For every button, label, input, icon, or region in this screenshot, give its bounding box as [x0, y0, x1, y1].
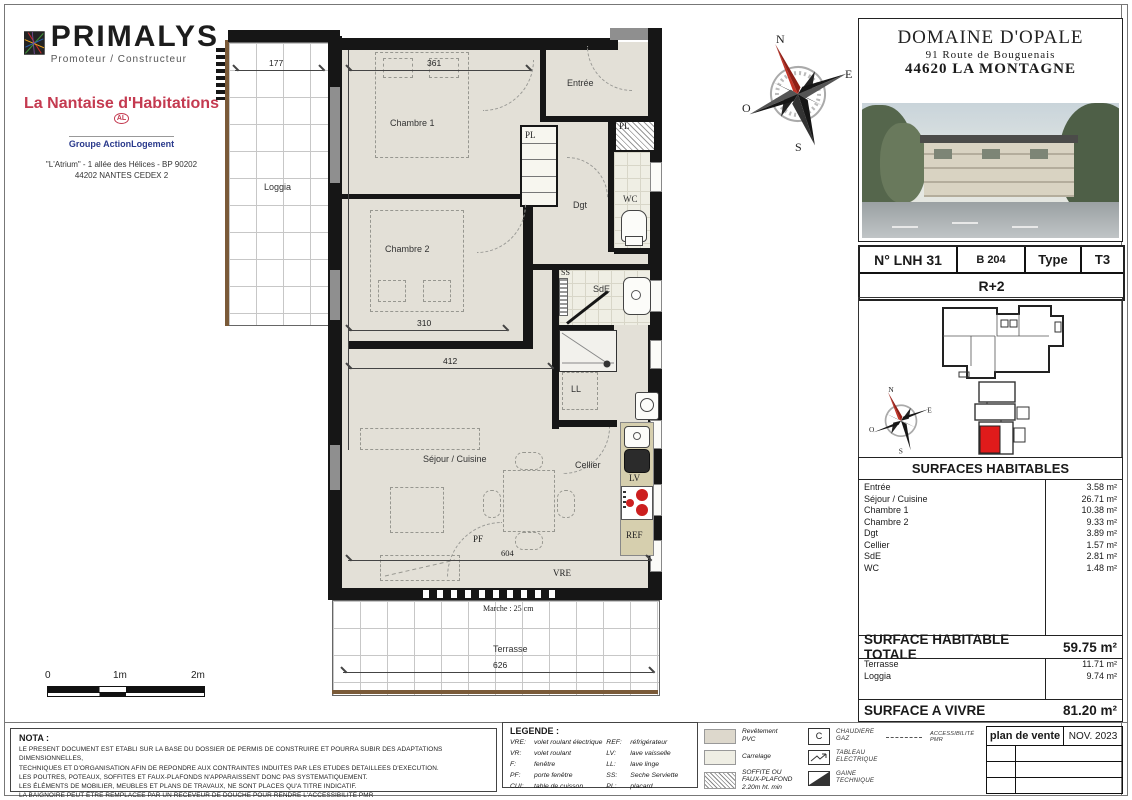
compass-s: S: [795, 140, 802, 152]
dim-sejour-label: 412: [443, 356, 457, 366]
legende-item: PL:placard: [606, 782, 690, 793]
tv-unit: [380, 555, 460, 581]
ll-label: LL: [571, 384, 581, 394]
dim-pf: [348, 560, 650, 561]
keyplan-compass-s: S: [899, 446, 903, 454]
scale-bar: 0 1m 2m: [45, 670, 205, 700]
scale-2m: 2m: [191, 670, 205, 681]
dim-terrasse: [343, 672, 653, 673]
legende-item: REF:réfrigérateur: [606, 738, 690, 749]
legende-title: LEGENDE :: [510, 726, 690, 736]
surface-row: Chambre 29.33 m²: [859, 517, 1122, 529]
unit-highlight-red: [980, 426, 1000, 453]
soffite-swatch-icon: [704, 772, 736, 789]
sde-label: SdE: [593, 284, 610, 294]
surface-row: Entrée3.58 m²: [859, 482, 1122, 494]
nota-line: LES ÉLÉMENTS DE MOBILIER, MEUBLES ET PLA…: [19, 782, 488, 791]
window-chambre2: [330, 270, 340, 320]
compass-e: E: [845, 67, 852, 81]
dim-sejour: [348, 368, 552, 369]
titleblock: plan de vente NOV. 2023: [986, 726, 1123, 794]
lv-label: LV: [629, 473, 640, 483]
pf-label: PF: [473, 534, 483, 544]
chair-bottom: [515, 532, 543, 550]
chambre2-label: Chambre 2: [385, 244, 430, 254]
building-photo: [862, 103, 1119, 238]
sofa: [360, 428, 480, 450]
surfaces-divider: [1045, 479, 1046, 636]
dining-table: [503, 470, 555, 532]
compass-rose-icon: N E S O: [742, 30, 854, 152]
totals-divider: [1045, 659, 1046, 699]
unit-info-table: N° LNH 31 B 204 Type T3 R+2: [858, 245, 1125, 301]
scale-0: 0: [45, 670, 51, 681]
wall-top-loggia: [228, 30, 340, 42]
project-street: 91 Route de Bouguenais: [859, 49, 1122, 61]
scale-1m: 1m: [113, 670, 127, 681]
wc-label: WC: [623, 194, 638, 204]
unit-type-label: Type: [1026, 247, 1082, 272]
terrasse-label: Terrasse: [493, 644, 528, 654]
vre-label: VRE: [553, 568, 571, 578]
legende-box: LEGENDE : VRE:volet roulant électrique V…: [502, 722, 698, 788]
wall-sde-left: [552, 264, 559, 429]
legende-item: F:fenêtre: [510, 760, 606, 771]
gaine-technique-icon: [808, 771, 830, 786]
dgt-label: Dgt: [573, 200, 587, 210]
vre-window: [415, 590, 563, 598]
unit-number: N° LNH 31: [860, 247, 958, 272]
terrasse-row-label: Terrasse: [859, 659, 1045, 671]
window-sde: [650, 280, 662, 312]
surface-row: SdE2.81 m²: [859, 551, 1122, 563]
totals-table: SURFACE HABITABLE TOTALE 59.75 m² Terras…: [858, 635, 1123, 722]
loggia-row-label: Loggia: [859, 671, 1045, 683]
nota-box: NOTA : LE PRESENT DOCUMENT EST ETABLI SU…: [10, 728, 497, 792]
address-line1: "L'Atrium" - 1 allée des Hélices - BP 90…: [24, 160, 219, 171]
legende-item: SS:Seche Serviette: [606, 771, 690, 782]
surfaces-title: SURFACES HABITABLES: [859, 458, 1122, 480]
loggia-row-value: 9.74 m²: [1045, 671, 1122, 683]
dim-loggia-label: 177: [269, 58, 283, 68]
pmr-legend: ACCESSIBILITÉ PMR: [886, 731, 984, 743]
symbols-legend: C CHAUDIEREGAZ TABLEAUELECTRIQUE GAINETE…: [808, 727, 898, 787]
wall-ch1-ch2: [342, 194, 528, 199]
primalys-wordmark: PRIMALYS: [51, 20, 219, 54]
toilet-base: [625, 236, 643, 246]
sejour-label: Séjour / Cuisine: [423, 454, 487, 464]
chair-right: [557, 490, 575, 518]
nota-line: TECHNIQUES ET D'ORGANISATION AFIN DE REP…: [19, 764, 488, 773]
window-chambre1: [330, 87, 340, 183]
tableau-label2: ELECTRIQUE: [836, 757, 878, 764]
marche-label: Marche : 25 cm: [483, 604, 533, 613]
water-heater-icon: [640, 398, 654, 412]
loggia-slats: [216, 48, 225, 100]
dim-terrasse-label: 626: [493, 660, 507, 670]
dim-vertical: [348, 50, 349, 450]
keyplan-unit-locator: [967, 380, 1037, 456]
surface-row: Dgt3.89 m²: [859, 528, 1122, 540]
pvc-label2: PVC: [742, 736, 778, 744]
nota-title: NOTA :: [19, 733, 488, 743]
primalys-logo-icon: [24, 26, 45, 60]
cellier-label: Cellier: [575, 460, 601, 470]
nota-line: LES POUTRES, POTEAUX, SOFFITES ET FAUX-P…: [19, 773, 488, 782]
keyplan-compass-n: N: [888, 385, 894, 394]
project-header-box: DOMAINE D'OPALE 91 Route de Bouguenais 4…: [858, 18, 1123, 242]
legende-item: PF:porte fenêtre: [510, 771, 606, 782]
branding-block: PRIMALYS Promoteur / Constructeur La Nan…: [24, 20, 219, 182]
terrasse-row-value: 11.71 m²: [1045, 659, 1122, 671]
document-date: NOV. 2023: [1064, 727, 1122, 745]
total-value: 59.75 m²: [1063, 640, 1122, 655]
tableau-electrique-icon: [808, 750, 830, 765]
compass-n: N: [776, 32, 785, 46]
dim-chambre1: [348, 70, 530, 71]
loggia-label: Loggia: [264, 182, 291, 192]
wall-wc-bottom: [614, 248, 652, 254]
chambre1-label: Chambre 1: [390, 118, 435, 128]
pl-center-label: PL: [525, 130, 536, 140]
project-city: 44620 LA MONTAGNE: [859, 61, 1122, 78]
unit-floor: R+2: [860, 274, 1123, 297]
pl-right-label: PL: [619, 121, 630, 131]
lave-vaisselle: [624, 449, 650, 473]
nota-line: LA BAIGNOIRE PEUT ÊTRE REMPLACEE PAR UN …: [19, 791, 488, 800]
unit-type-value: T3: [1082, 247, 1123, 272]
keyplan-compass-icon: N E S O: [869, 384, 933, 454]
gaine-label2: TECHNIQUE: [836, 778, 874, 785]
pillow1-chambre1: [383, 58, 413, 78]
window-shower: [650, 340, 662, 369]
legende-item: LV:lave vaisselle: [606, 749, 690, 760]
keyplan-floor-outline: [931, 302, 1071, 380]
chaudiere-label2: GAZ: [836, 736, 874, 743]
legende-item: LL:lave linge: [606, 760, 690, 771]
carrelage-label: Carrelage: [742, 753, 771, 761]
chair-top: [515, 452, 543, 470]
cooktop: [621, 486, 653, 520]
total-label: SURFACE HABITABLE TOTALE: [859, 632, 1063, 662]
titleblock-empty-row: [987, 746, 1122, 762]
legende-item: CUI:table de cuisson: [510, 782, 606, 793]
unit-ref: B 204: [958, 247, 1026, 272]
wall-cellier-bottom: [555, 420, 617, 427]
pillow1-chambre2: [378, 280, 406, 302]
pvc-label1: Revêtement: [742, 728, 778, 736]
sde-sink-drain: [631, 290, 641, 300]
legende-item: VR:volet roulant: [510, 749, 606, 760]
groupe-actionlogement: Groupe ActionLogement: [69, 136, 174, 149]
entree-label: Entrée: [567, 78, 594, 88]
window-wc: [650, 162, 662, 192]
wall-ch2-bottom: [348, 341, 533, 349]
compass-o: O: [742, 101, 751, 115]
seche-serviette: [559, 278, 568, 316]
pillow2-chambre2: [423, 280, 451, 302]
wall-entree-left: [540, 42, 546, 122]
carrelage-swatch-icon: [704, 750, 736, 765]
soffite-label2: FAUX-PLAFOND: [742, 776, 792, 784]
coffee-table: [390, 487, 444, 533]
dim-chambre1-label: 361: [427, 58, 441, 68]
project-name: DOMAINE D'OPALE: [859, 27, 1122, 49]
soffite-label3: 2.20m ht. min: [742, 784, 792, 792]
surfaces-table: SURFACES HABITABLES Entrée3.58 m² Séjour…: [858, 457, 1123, 637]
surface-row: WC1.48 m²: [859, 563, 1122, 575]
pmr-dash-icon: [886, 737, 922, 738]
plan-de-vente-page: PRIMALYS Promoteur / Constructeur La Nan…: [0, 0, 1132, 800]
materials-legend: RevêtementPVC Carrelage SOFFITE OUFAUX-P…: [704, 727, 804, 791]
ref-label: REF: [626, 530, 643, 540]
vivre-value: 81.20 m²: [1063, 703, 1122, 718]
wall-top: [336, 38, 618, 50]
dim-chambre2: [348, 330, 507, 331]
surface-row: Chambre 110.38 m²: [859, 505, 1122, 517]
soffite-label1: SOFFITE OU: [742, 769, 792, 777]
primalys-tagline: Promoteur / Constructeur: [51, 54, 219, 65]
dim-chambre2-label: 310: [417, 318, 431, 328]
scale-bar-bottom: [47, 692, 205, 697]
chaudiere-gaz-icon: C: [808, 728, 830, 745]
vivre-label: SURFACE A VIVRE: [859, 703, 1063, 718]
titleblock-empty-row: [987, 762, 1122, 778]
ss-label: SS: [561, 268, 570, 277]
titleblock-empty-row: [987, 778, 1122, 793]
kitchen-sink-drain: [633, 432, 641, 440]
terrasse-wood-edge: [332, 690, 658, 694]
wall-ch-vertical: [523, 194, 533, 346]
legende-item: VRE:volet roulant électrique: [510, 738, 606, 749]
actionlogement-badge-icon: AL: [114, 113, 129, 124]
surface-row: Cellier1.57 m²: [859, 540, 1122, 552]
window-sejour: [330, 445, 340, 490]
keyplan-compass-e: E: [927, 406, 932, 415]
pvc-swatch-icon: [704, 729, 736, 744]
chair-left: [483, 490, 501, 518]
pmr-label: ACCESSIBILITÉ PMR: [930, 731, 984, 743]
keyplan-box: N E S O: [858, 297, 1123, 459]
surface-row: Séjour / Cuisine26.71 m²: [859, 494, 1122, 506]
dim-pf-label: 604: [501, 548, 514, 558]
address-line2: 44202 NANTES CEDEX 2: [24, 171, 219, 182]
nota-line: LE PRESENT DOCUMENT EST ETABLI SUR LA BA…: [19, 745, 488, 764]
shower-tray: [559, 330, 617, 372]
dim-loggia: [235, 70, 323, 71]
document-type: plan de vente: [987, 727, 1064, 745]
nantaise-wordmark: La Nantaise d'Habitations: [24, 95, 219, 112]
loggia-wood-edge: [225, 40, 229, 326]
keyplan-compass-o: O: [869, 425, 875, 434]
